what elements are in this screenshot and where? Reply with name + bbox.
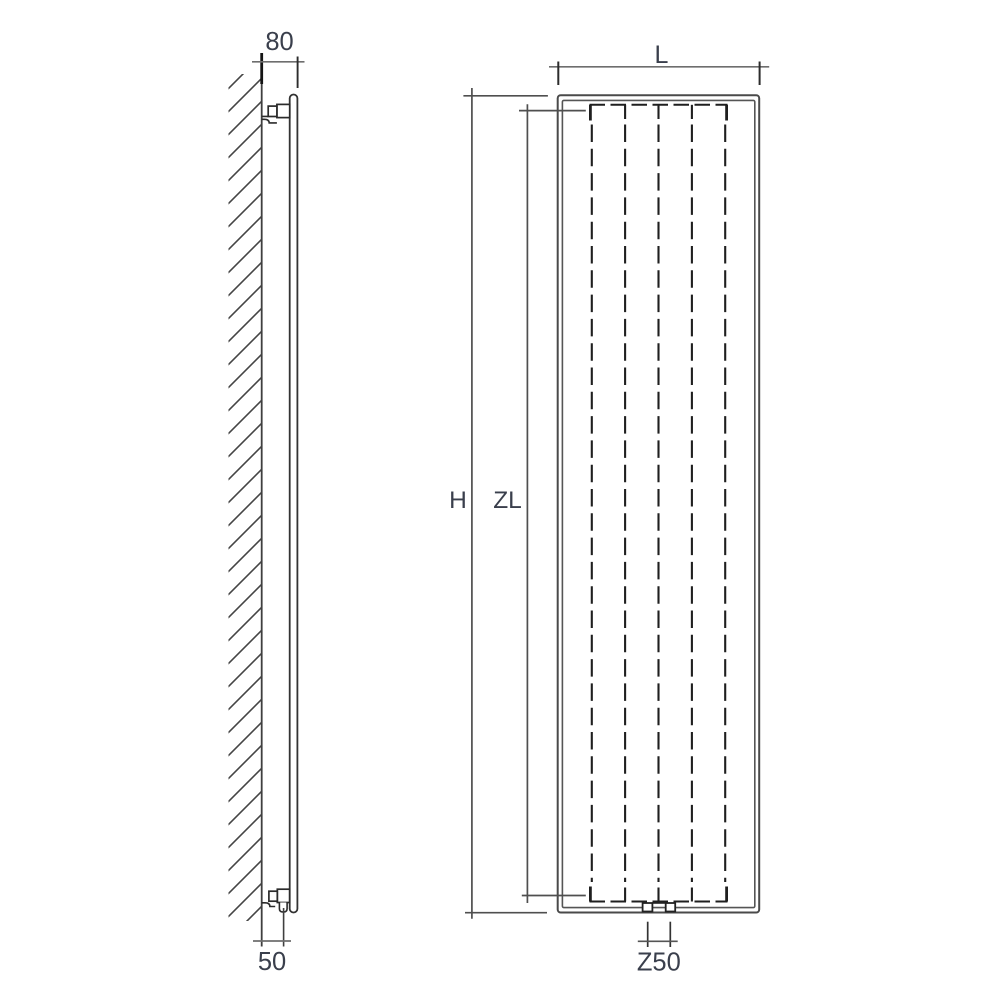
svg-text:50: 50 — [258, 948, 286, 976]
svg-text:L: L — [655, 41, 669, 69]
svg-text:Z50: Z50 — [637, 948, 681, 976]
svg-text:ZL: ZL — [493, 487, 522, 514]
svg-text:H: H — [449, 487, 467, 514]
svg-text:80: 80 — [265, 28, 293, 56]
